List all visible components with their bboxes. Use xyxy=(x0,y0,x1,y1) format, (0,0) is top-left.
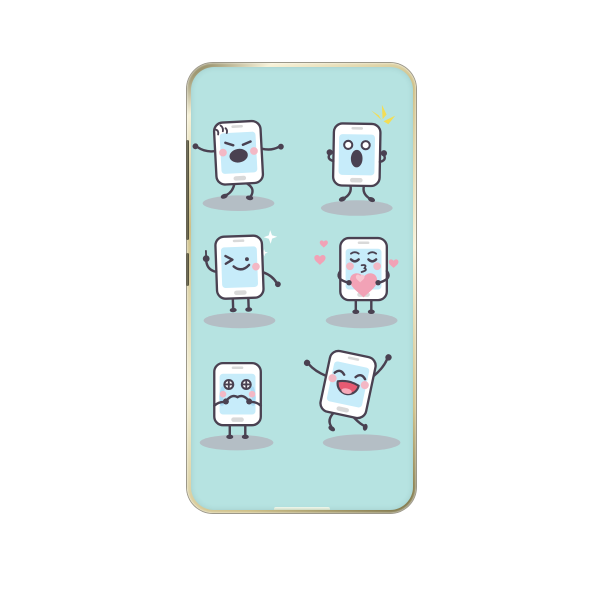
foot-left xyxy=(352,309,359,313)
foot-left xyxy=(229,307,236,312)
foot-right xyxy=(241,434,248,438)
power-button xyxy=(186,253,189,286)
volume-button xyxy=(186,140,189,240)
fist-right xyxy=(246,398,252,404)
floating-heart-icon xyxy=(388,259,398,268)
floating-heart-icon xyxy=(314,254,325,264)
arm-right xyxy=(261,146,279,149)
speaker-slot xyxy=(231,366,243,369)
home-button xyxy=(233,290,246,295)
arm-left xyxy=(206,261,216,272)
character-angry-phone xyxy=(191,119,286,203)
speaker-slot xyxy=(232,239,244,242)
home-button xyxy=(233,175,246,180)
leg-right xyxy=(363,185,369,198)
home-button xyxy=(349,177,362,182)
character-crying-phone xyxy=(214,363,261,439)
product-photo xyxy=(0,0,600,600)
foot-right xyxy=(367,309,374,313)
leg-left xyxy=(225,184,234,195)
arm-left xyxy=(307,364,328,376)
ground-shadow xyxy=(322,434,400,450)
cheek-left xyxy=(219,390,226,397)
round-eye-left xyxy=(344,140,352,148)
fist-right xyxy=(277,143,283,149)
hand-left xyxy=(326,149,332,155)
floating-heart-icon xyxy=(319,240,327,247)
arm-right xyxy=(262,271,276,283)
cheek-right xyxy=(373,262,381,270)
foot-right xyxy=(245,307,252,312)
character-winking-phone xyxy=(201,229,281,312)
ground-shadow xyxy=(199,434,273,450)
ground-shadow xyxy=(202,195,274,211)
hand-right xyxy=(375,279,380,284)
ground-shadow xyxy=(203,312,275,328)
cheek-left xyxy=(346,262,354,270)
round-eye-right xyxy=(361,141,369,149)
sparkle-icon xyxy=(263,229,277,243)
ground-shadow xyxy=(325,312,397,328)
cheek-right xyxy=(248,390,255,397)
case-back xyxy=(191,67,413,510)
character-kissing-phone xyxy=(314,238,398,314)
fist-left xyxy=(222,398,228,404)
leg-left xyxy=(344,185,350,198)
arm-left xyxy=(197,146,215,152)
home-button xyxy=(231,417,244,421)
ground-shadow xyxy=(320,200,392,216)
character-surprised-phone xyxy=(325,103,395,203)
leg-right xyxy=(246,183,252,197)
case-artwork xyxy=(191,67,413,510)
flash-icon xyxy=(370,104,395,124)
charging-port-cutout xyxy=(274,507,330,510)
speaker-slot xyxy=(351,126,363,129)
phone-case xyxy=(187,63,416,513)
speaker-slot xyxy=(357,241,369,244)
character-dancing-phone xyxy=(290,337,391,441)
hand-right xyxy=(380,150,386,156)
foot-left xyxy=(226,434,233,438)
hand-left xyxy=(346,279,351,284)
